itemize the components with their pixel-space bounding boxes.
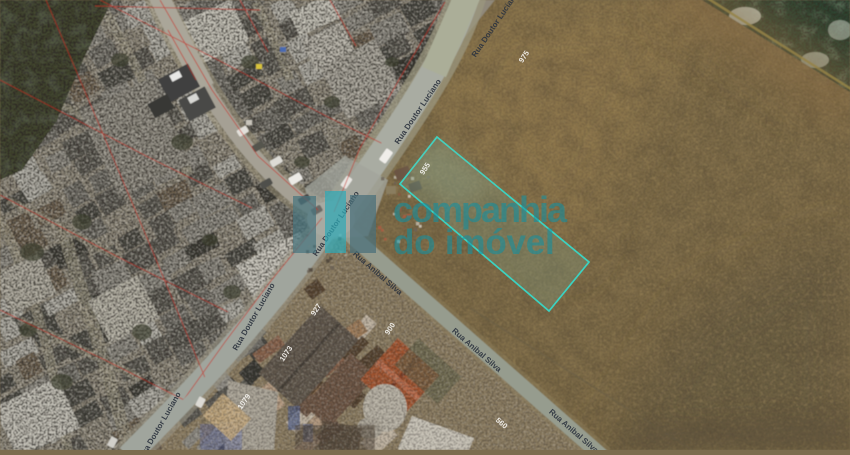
svg-text:do imóvel: do imóvel [393, 223, 555, 262]
